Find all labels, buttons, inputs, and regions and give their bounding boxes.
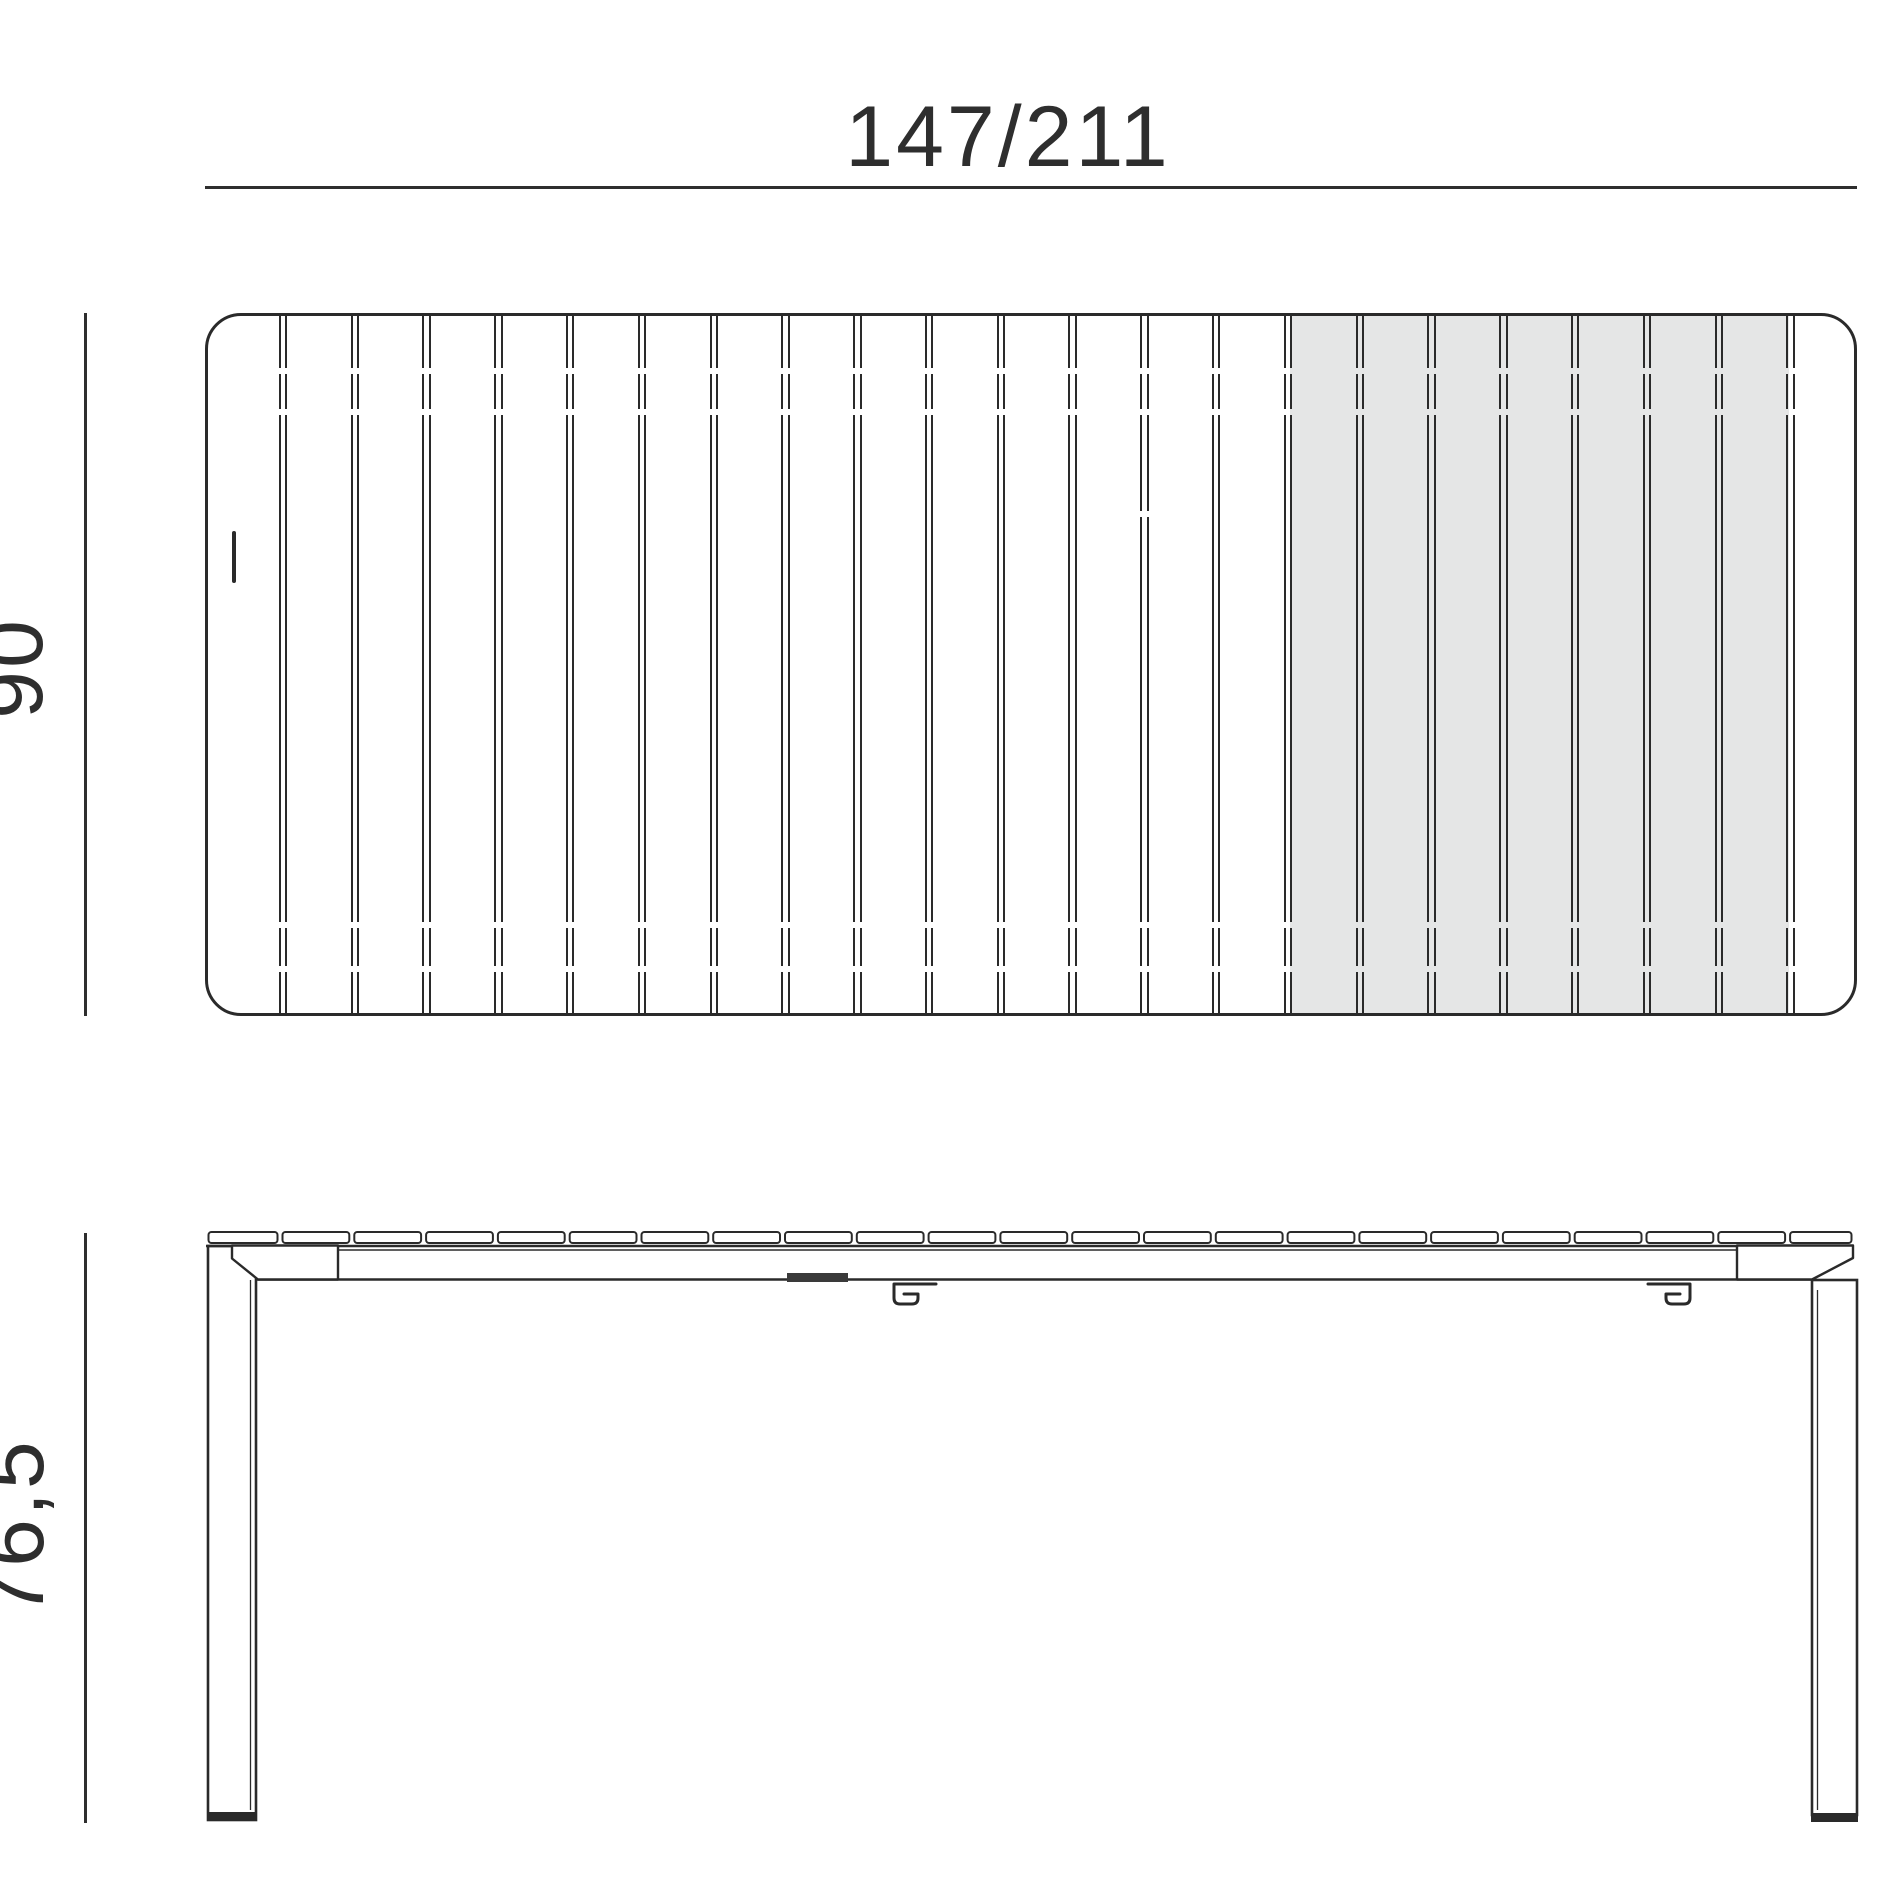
slat-separator [422, 374, 430, 409]
slat-separator [1786, 374, 1794, 409]
slat-separator [1212, 316, 1220, 368]
slat-separator [710, 928, 718, 966]
slat-separator [279, 928, 287, 966]
slat-separator [1427, 374, 1435, 409]
slat-end-segment [929, 1232, 996, 1243]
latch-hook-left [894, 1284, 936, 1304]
slat-separator [1499, 928, 1507, 966]
slat-end-segment [1072, 1232, 1139, 1243]
slat-separator [1356, 316, 1364, 368]
slat-separator [351, 972, 359, 1013]
slat-end-segment [498, 1232, 565, 1243]
slat-separator [494, 374, 502, 409]
slat-separator [853, 928, 861, 966]
slat-separator [351, 316, 359, 368]
slat-end-segment [1503, 1232, 1570, 1243]
slat-end-segment [283, 1232, 350, 1243]
slat-separator [494, 972, 502, 1013]
slat-end-segment [1718, 1232, 1785, 1243]
slat-separator [997, 316, 1005, 368]
slat-separator [1499, 972, 1507, 1013]
slat-end-segment [1359, 1232, 1426, 1243]
slat-separator [1068, 316, 1076, 368]
slat-separator [997, 374, 1005, 409]
slat-separator [781, 928, 789, 966]
slat-separator [1571, 316, 1579, 368]
slat-separator [1140, 415, 1148, 511]
slat-separator [710, 415, 718, 922]
slat-separator [494, 928, 502, 966]
left-leg [207, 1246, 257, 1821]
slat-separator [1715, 374, 1723, 409]
slat-separator [1356, 374, 1364, 409]
slat-separator [1068, 972, 1076, 1013]
left-leg-foot [207, 1812, 257, 1821]
slat-separator [1284, 316, 1292, 368]
slat-separator [1068, 374, 1076, 409]
slat-end-segment [1216, 1232, 1283, 1243]
slat-separator [1356, 972, 1364, 1013]
right-frame-bracket [1737, 1246, 1853, 1280]
slat-separator [422, 316, 430, 368]
slat-separator [351, 415, 359, 922]
slat-separator [853, 972, 861, 1013]
slat-separator [1786, 972, 1794, 1013]
slat-end-segment [1431, 1232, 1498, 1243]
slat-separator [1427, 972, 1435, 1013]
slat-separator [494, 415, 502, 922]
slat-separator [1715, 972, 1723, 1013]
slat-separator [853, 415, 861, 922]
latch-hook-right [1648, 1284, 1690, 1304]
slat-separator [1643, 972, 1651, 1013]
depth-dimension-label: 90 [0, 568, 113, 768]
slat-separator [1284, 972, 1292, 1013]
slat-separator [1427, 316, 1435, 368]
slat-separator [1068, 415, 1076, 922]
slat-end-segment [209, 1232, 278, 1243]
slat-separator [1140, 316, 1148, 368]
slat-separator [351, 928, 359, 966]
slat-separator [1212, 972, 1220, 1013]
slat-end-segment [1144, 1232, 1211, 1243]
slat-separator [1643, 316, 1651, 368]
slat-end-segment [1790, 1232, 1851, 1243]
slat-separator [494, 316, 502, 368]
slat-separator [1356, 928, 1364, 966]
slat-separator [1427, 928, 1435, 966]
slat-separator [781, 316, 789, 368]
slat-separator [638, 928, 646, 966]
slat-separator [279, 972, 287, 1013]
slat-separator [853, 316, 861, 368]
table-side-view [0, 1180, 1880, 1880]
slat-separator [279, 415, 287, 922]
slat-separator [1571, 928, 1579, 966]
slat-separator [638, 374, 646, 409]
slat-end-segment [642, 1232, 709, 1243]
slat-separator [1499, 316, 1507, 368]
slat-separator [1786, 415, 1794, 922]
slat-separator [781, 972, 789, 1013]
slat-separator [925, 972, 933, 1013]
slat-separator [997, 972, 1005, 1013]
slat-separator [1427, 415, 1435, 922]
slat-separator [1356, 415, 1364, 922]
slat-end-segment [857, 1232, 924, 1243]
slat-separator [710, 316, 718, 368]
right-leg [1811, 1280, 1858, 1822]
slat-end-segment [1288, 1232, 1355, 1243]
slat-separator [638, 972, 646, 1013]
slat-separator [638, 415, 646, 922]
slat-end-segment [354, 1232, 421, 1243]
width-dimension-line [205, 186, 1857, 189]
slat-separator [351, 374, 359, 409]
slat-separator [1715, 316, 1723, 368]
slat-separator [997, 928, 1005, 966]
right-leg-foot [1811, 1813, 1858, 1822]
slat-separator [710, 972, 718, 1013]
slat-separator [1499, 374, 1507, 409]
slat-separator [1140, 928, 1148, 966]
slat-separator [566, 374, 574, 409]
slat-separator [566, 972, 574, 1013]
rail-end-cap [787, 1273, 848, 1282]
slat-separator [1643, 928, 1651, 966]
slat-separator [1643, 415, 1651, 922]
slat-separator [1499, 415, 1507, 922]
slat-separator [1643, 374, 1651, 409]
slat-separator [422, 415, 430, 922]
slat-separator [422, 928, 430, 966]
slat-separator [1212, 928, 1220, 966]
slat-separator [925, 415, 933, 922]
slat-separator [1140, 972, 1148, 1013]
slat-separator [1786, 316, 1794, 368]
slat-separator [710, 374, 718, 409]
slat-separator [279, 374, 287, 409]
slat-separator [1786, 928, 1794, 966]
width-dimension-label: 147/211 [708, 94, 1308, 180]
slat-end-segment [1575, 1232, 1642, 1243]
slat-separator [1212, 415, 1220, 922]
slat-separator [781, 374, 789, 409]
slat-separator [781, 415, 789, 922]
slat-separator [638, 316, 646, 368]
slat-separator [1284, 374, 1292, 409]
table-top-view [205, 313, 1857, 1016]
slat-separator [925, 316, 933, 368]
slat-separator [1068, 928, 1076, 966]
slat-end-segment [1647, 1232, 1714, 1243]
slat-separator [1284, 928, 1292, 966]
slat-separator [925, 374, 933, 409]
slat-separator [566, 928, 574, 966]
slat-end-segment [426, 1232, 493, 1243]
slat-separator [1571, 415, 1579, 922]
slat-separator [853, 374, 861, 409]
slat-end-segment [785, 1232, 852, 1243]
latch-mark [232, 531, 236, 583]
slat-separator [997, 415, 1005, 922]
depth-dimension-line [84, 313, 87, 1016]
slat-separator [1571, 374, 1579, 409]
slat-separator [1571, 972, 1579, 1013]
slat-separator [279, 316, 287, 368]
slat-separator [1284, 415, 1292, 922]
slat-separator [1715, 415, 1723, 922]
slat-separator [1715, 928, 1723, 966]
slat-end-segment [570, 1232, 637, 1243]
slat-separator [1140, 517, 1148, 922]
tabletop-edge-slats [209, 1232, 1852, 1243]
slat-separator [566, 316, 574, 368]
slat-end-segment [713, 1232, 780, 1243]
slat-separator [422, 972, 430, 1013]
slat-separator [925, 928, 933, 966]
slat-end-segment [1000, 1232, 1067, 1243]
slat-separator [1212, 374, 1220, 409]
drawing-canvas: 147/211 90 76,5 [0, 0, 1880, 1880]
slat-separator [566, 415, 574, 922]
slat-separator [1140, 374, 1148, 409]
